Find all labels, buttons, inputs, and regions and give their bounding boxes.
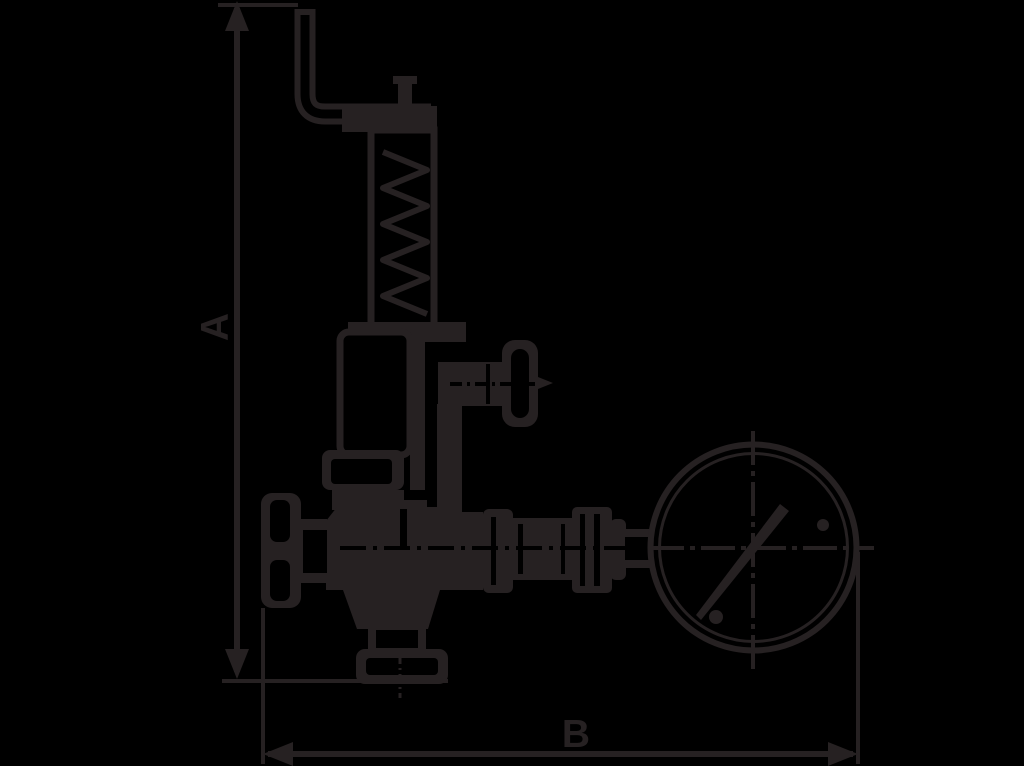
outlet-neck <box>372 626 422 652</box>
pipe-coupling <box>462 512 483 590</box>
valve-technical-drawing: A B <box>0 0 1024 766</box>
inlet-stem-gap <box>303 530 327 573</box>
inlet-handwheel-hole-bottom <box>270 560 290 601</box>
gauge-dial-dot-left <box>709 610 723 624</box>
dimension-a-label: A <box>194 313 237 341</box>
inlet-handwheel-hole-top <box>270 500 290 542</box>
pipe-nut-left <box>483 509 513 593</box>
bonnet-housing <box>340 332 410 455</box>
lever-fulcrum-pin <box>398 80 412 110</box>
bonnet-flange-hole <box>331 459 392 484</box>
outlet-column <box>437 404 462 512</box>
gauge-dial-dot-right <box>817 519 829 531</box>
valve-body <box>326 500 462 590</box>
pipe-nut-left-slit <box>491 517 496 585</box>
dimension-b-label: B <box>562 713 590 756</box>
outlet-flange-hole <box>366 658 438 675</box>
valve-body-gap <box>400 509 407 547</box>
bonnet-side-rod <box>410 335 425 490</box>
